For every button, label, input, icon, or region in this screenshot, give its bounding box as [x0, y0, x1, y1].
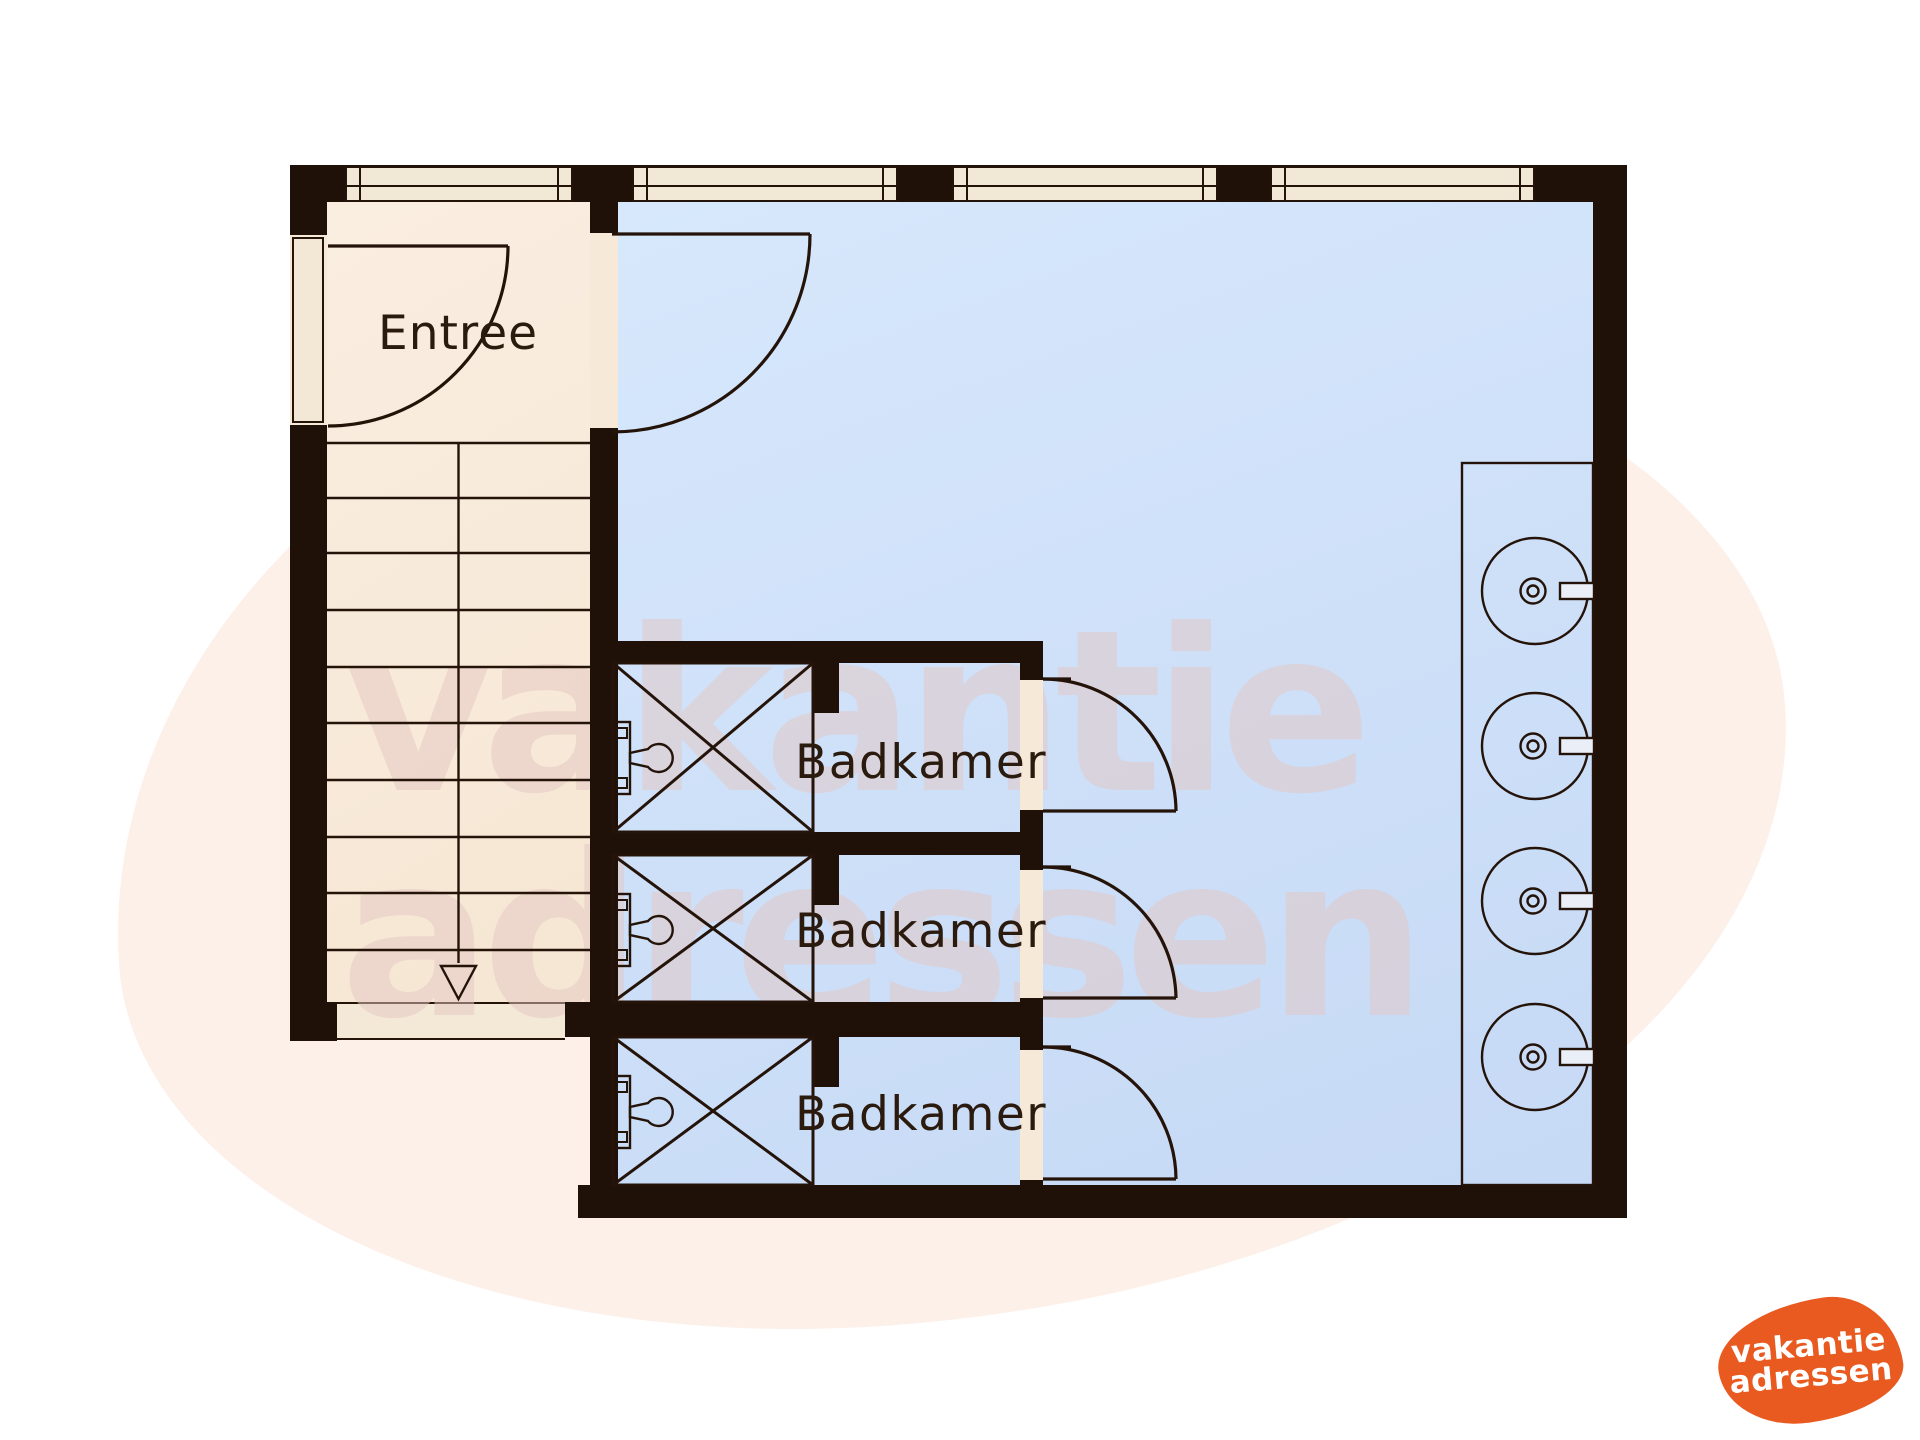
- bathroom2-door-swing-icon: [1043, 867, 1176, 998]
- stairs-direction-arrow-icon: [441, 966, 476, 999]
- staircase: [327, 443, 590, 999]
- shower-symbol-icon: [612, 855, 813, 1002]
- washbasin-icon: [1482, 693, 1594, 799]
- room-label-badkamer-2: Badkamer: [795, 904, 1047, 959]
- washbasin-counter: [1462, 463, 1593, 1185]
- shower-symbol-icon: [612, 1037, 813, 1185]
- washbasin-icon: [1482, 848, 1594, 954]
- main-room-door-swing-icon: [612, 234, 810, 432]
- shower-symbol-icon: [612, 663, 813, 832]
- room-label-badkamer-1: Badkamer: [795, 735, 1047, 790]
- washbasin-icon: [1482, 1004, 1594, 1110]
- room-label-entree: Entree: [378, 306, 538, 361]
- washbasin-icon: [1482, 538, 1594, 644]
- bathroom3-door-swing-icon: [1043, 1047, 1176, 1179]
- floor-plan-page: vakantie adressen: [0, 0, 1920, 1440]
- room-label-badkamer-3: Badkamer: [795, 1087, 1047, 1142]
- plan-symbols: [0, 0, 1920, 1440]
- bathroom1-door-swing-icon: [1043, 679, 1176, 811]
